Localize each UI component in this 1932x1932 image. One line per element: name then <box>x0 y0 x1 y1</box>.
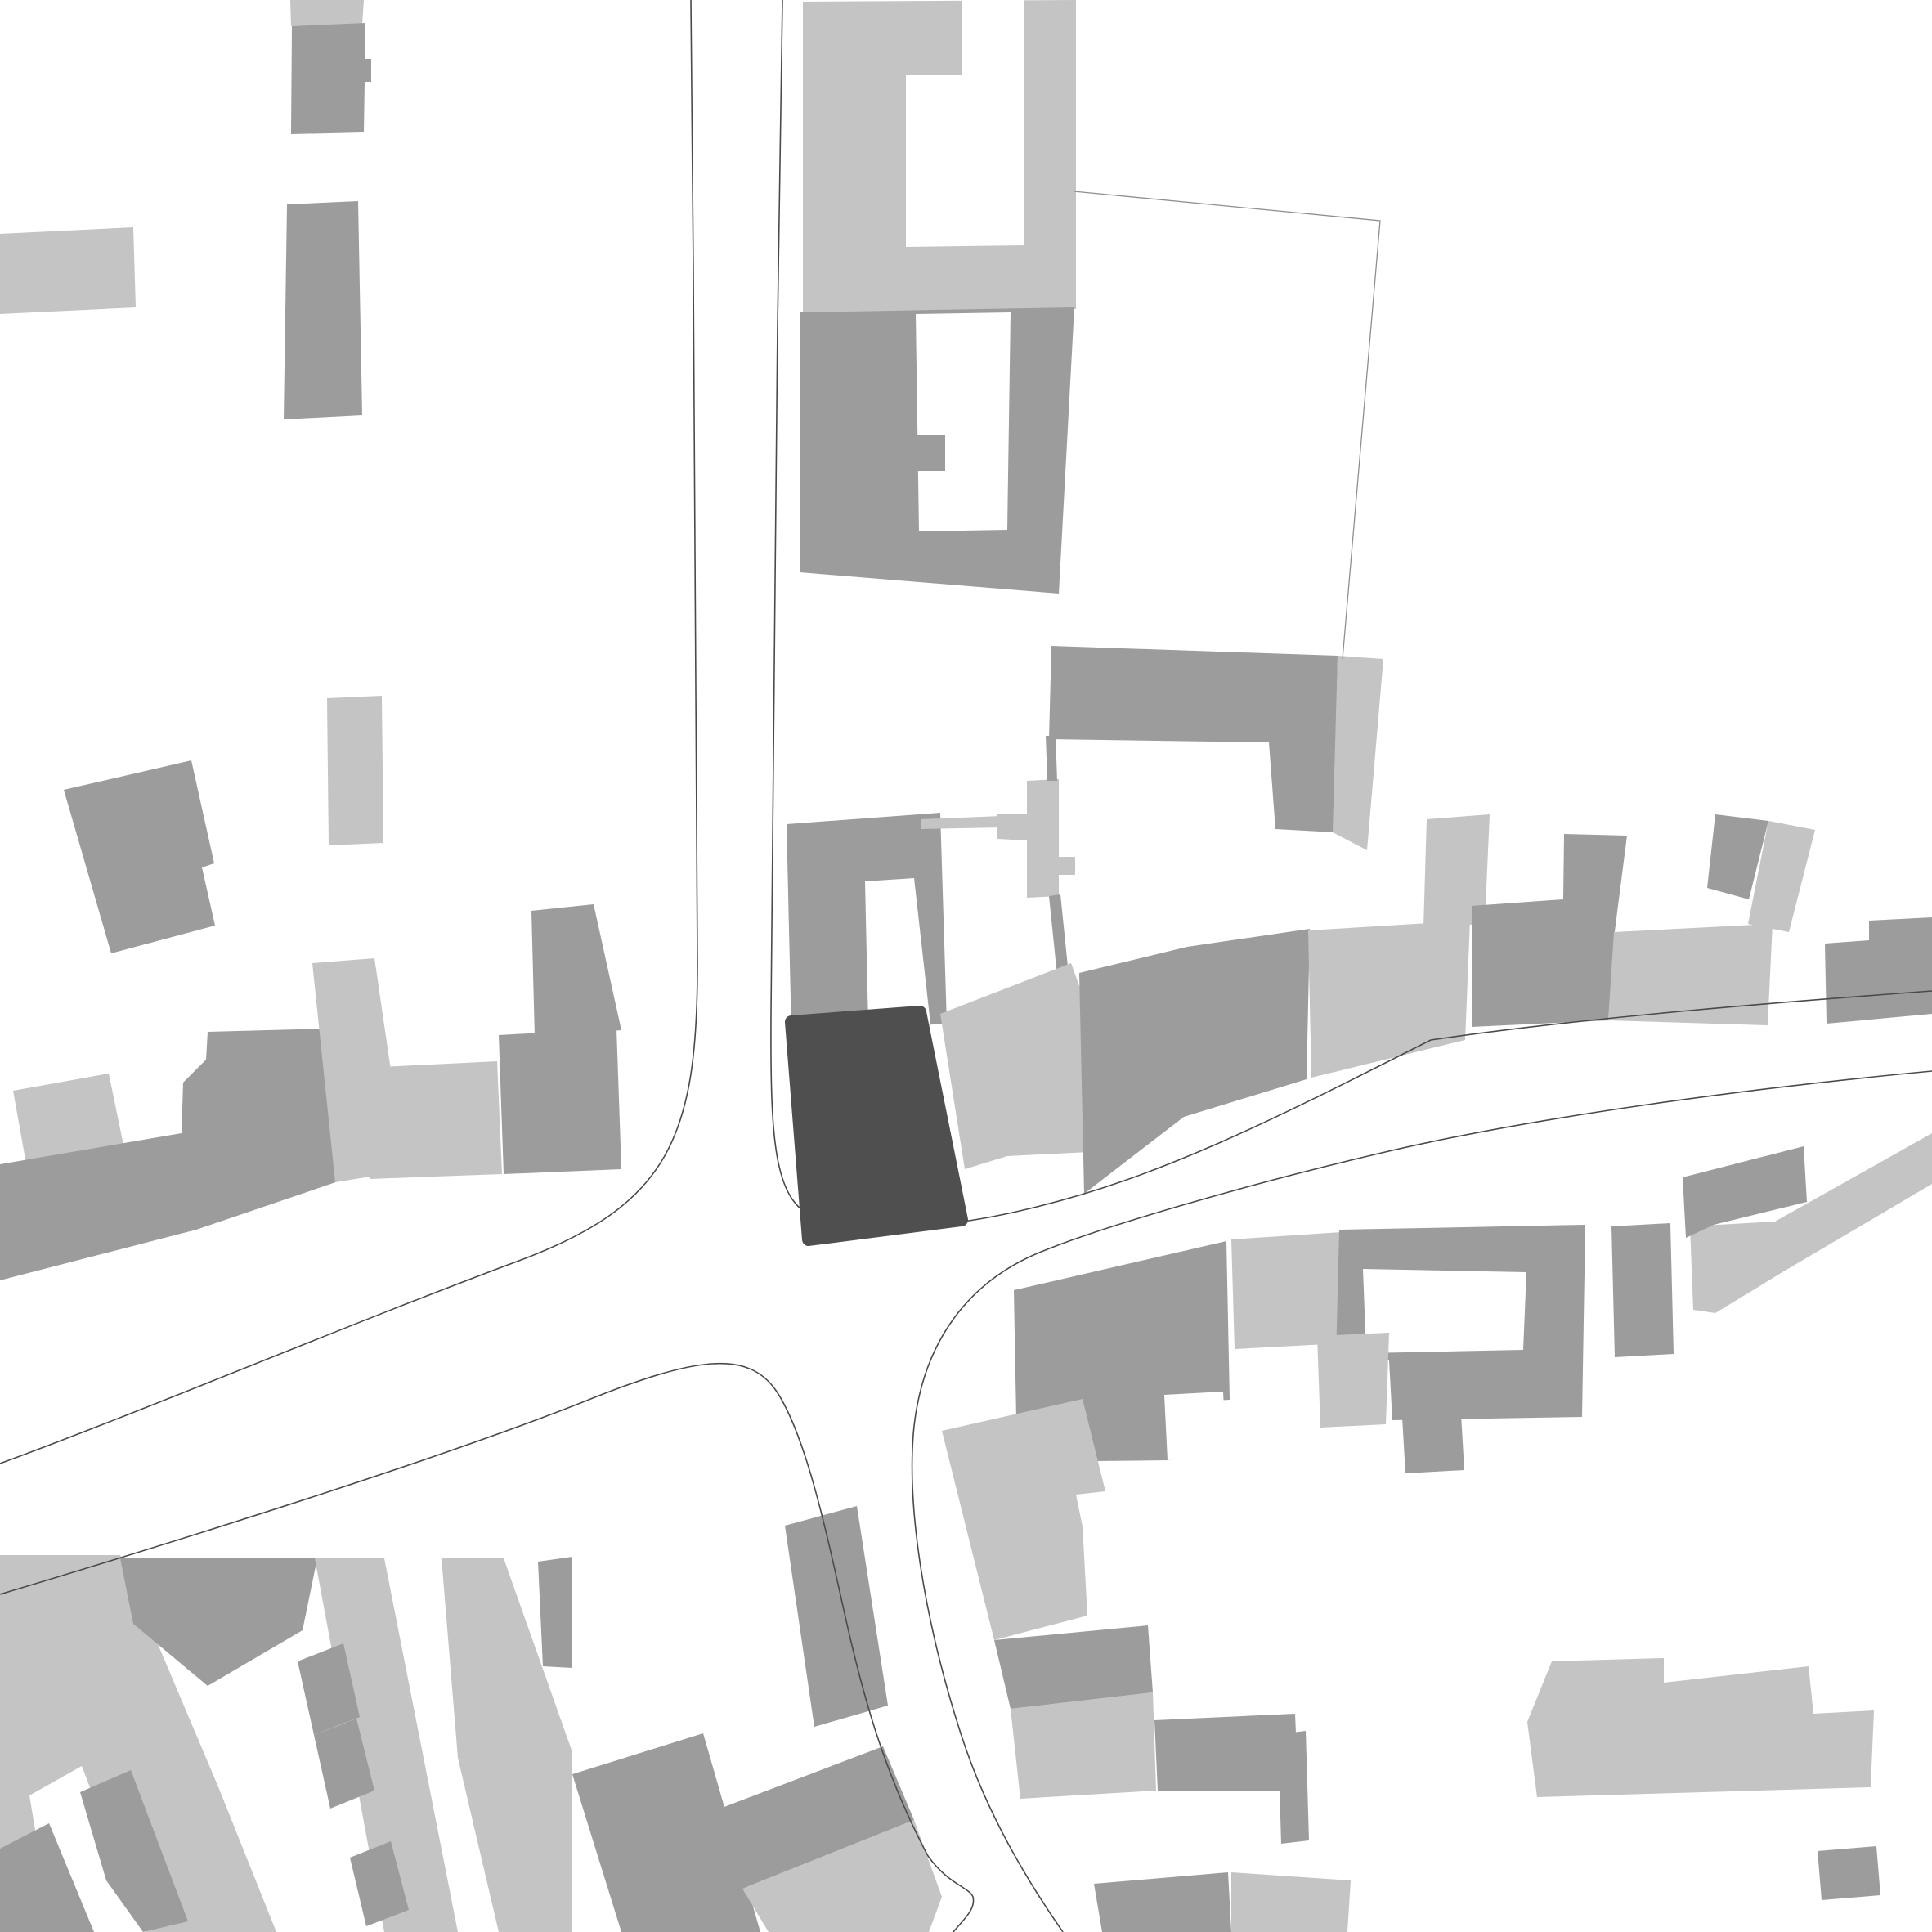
building-se-ext-medium <box>1402 1414 1464 1473</box>
building-nw-a-medium <box>291 23 371 134</box>
wall-center-1-medium <box>1046 736 1057 781</box>
building-s-edge-light <box>1231 1872 1351 1932</box>
courtyard-north-gap <box>962 0 1024 75</box>
building-sw-corner-top-medium <box>538 1557 572 1668</box>
building-nw-cap-light <box>290 0 364 26</box>
building-w-block-light <box>365 1061 502 1179</box>
building-center-arm-light <box>997 814 1027 840</box>
building-se-small-medium <box>1818 1846 1880 1900</box>
building-nw-b-light <box>0 227 136 314</box>
building-se-sliver-medium <box>1278 1731 1309 1844</box>
site-plan-map <box>0 0 1932 1932</box>
courtyard-se-notch <box>1164 1392 1226 1460</box>
building-se-band2-medium <box>1154 1714 1298 1791</box>
building-nw-d-light <box>327 696 383 845</box>
courtyard-north-2 <box>916 312 1011 531</box>
building-se-band-light <box>1011 1692 1156 1799</box>
courtyard-north-1 <box>906 75 1024 247</box>
site-plan-page <box>0 0 1932 1932</box>
building-w-block-medium <box>499 1029 621 1174</box>
building-north-tab-medium <box>909 435 945 471</box>
building-se-side-light <box>1317 1333 1389 1428</box>
building-nw-c-medium <box>284 201 362 419</box>
building-se-rect-medium <box>1611 1223 1674 1357</box>
